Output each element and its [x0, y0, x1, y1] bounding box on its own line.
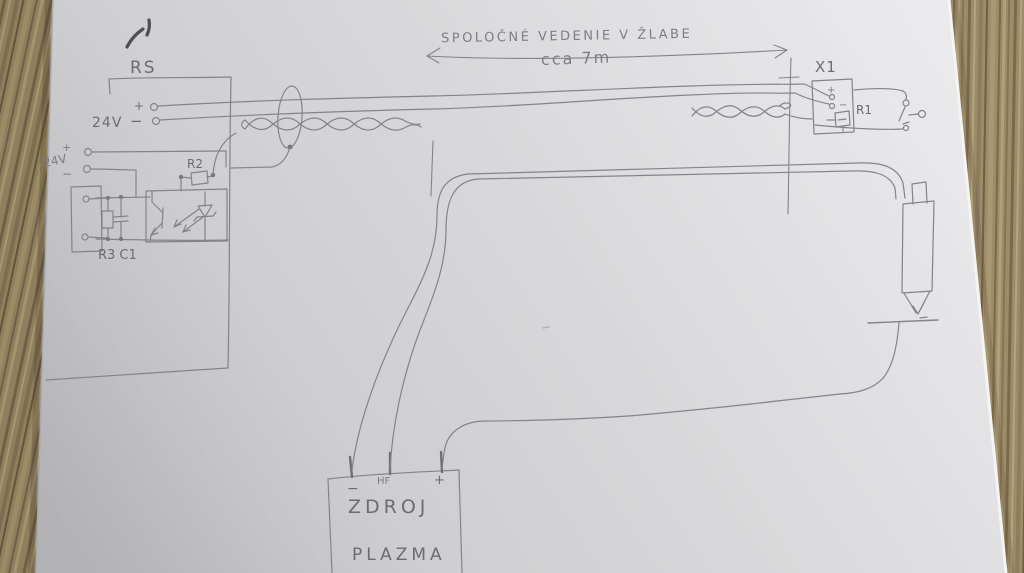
rs-minus-sign: − [130, 112, 143, 130]
r3c1-label: R3 C1 [98, 248, 137, 263]
plasma-plus-terminal [441, 452, 442, 472]
aux-minus-sign: − [62, 167, 72, 181]
x1-minus-sign: − [839, 100, 847, 111]
v24-label: 24V [92, 115, 122, 131]
plasma-plus-sign: + [434, 473, 445, 488]
r2-label: R2 [187, 157, 203, 171]
x1-label: X1 [815, 58, 837, 76]
x1-plus-sign: + [827, 85, 835, 96]
plasma-minus-sign: − [347, 481, 359, 497]
length-label: cca 7m [541, 48, 612, 69]
plazma-label: PLAZMA [352, 545, 446, 565]
r1-label: R1 [856, 103, 872, 117]
zdroj-label: ZDROJ [348, 496, 429, 518]
rs-plus-sign: + [134, 99, 144, 113]
schematic-photo: SPOLOČNÉ VEDENIE V ŽLABE cca 7m RS 24V +… [0, 0, 1024, 573]
hf-label: HF [377, 476, 391, 487]
rs-label: RS [130, 58, 157, 78]
paper-sheet [36, 0, 1006, 573]
